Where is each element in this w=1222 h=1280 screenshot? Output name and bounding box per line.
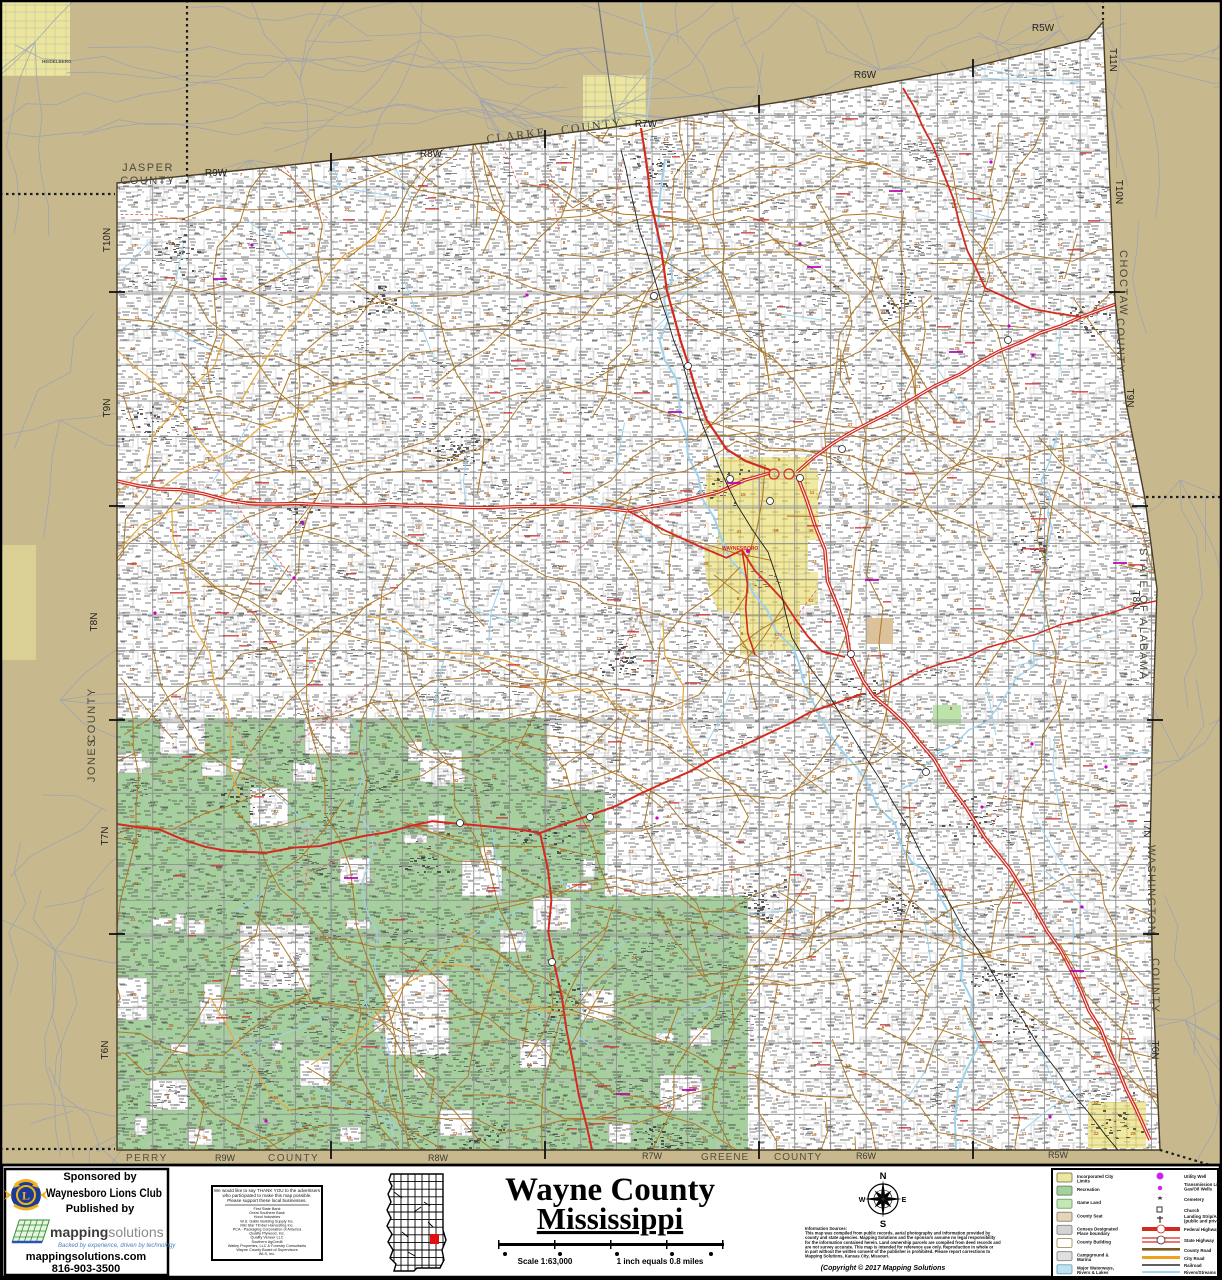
svg-text:4: 4	[955, 809, 958, 814]
svg-text:34: 34	[557, 884, 563, 889]
svg-text:28: 28	[811, 100, 817, 105]
svg-text:31: 31	[489, 563, 495, 568]
svg-text:Federal Highway: Federal Highway	[1184, 1227, 1219, 1232]
svg-text:25: 25	[168, 1023, 174, 1028]
svg-text:10: 10	[347, 811, 353, 816]
svg-text:29: 29	[810, 670, 816, 675]
svg-text:15: 15	[347, 561, 353, 566]
svg-text:L: L	[22, 1189, 30, 1203]
svg-text:9: 9	[991, 919, 994, 924]
svg-text:10: 10	[345, 955, 351, 960]
svg-text:3: 3	[382, 849, 385, 854]
svg-text:33: 33	[310, 243, 316, 248]
svg-text:2: 2	[563, 1132, 566, 1137]
svg-text:25: 25	[771, 1026, 777, 1031]
svg-text:32: 32	[704, 1096, 710, 1101]
svg-text:23: 23	[988, 565, 994, 570]
svg-text:19: 19	[307, 456, 313, 461]
svg-text:33: 33	[736, 776, 742, 781]
svg-text:8: 8	[882, 385, 885, 390]
svg-text:26: 26	[1096, 421, 1102, 426]
svg-text:34: 34	[914, 346, 920, 351]
svg-text:5: 5	[702, 244, 705, 249]
svg-text:10: 10	[414, 562, 420, 567]
svg-text:32: 32	[307, 881, 313, 886]
svg-text:12: 12	[666, 456, 672, 461]
svg-text:29: 29	[204, 1063, 210, 1068]
svg-text:36: 36	[167, 919, 173, 924]
svg-text:32: 32	[239, 1133, 245, 1138]
svg-text:31: 31	[1095, 1064, 1101, 1069]
svg-text:15: 15	[487, 384, 493, 389]
svg-text:2: 2	[669, 563, 672, 568]
svg-text:28: 28	[593, 243, 599, 248]
svg-text:9: 9	[813, 133, 816, 138]
svg-text:32: 32	[453, 778, 459, 783]
svg-text:16: 16	[237, 453, 243, 458]
svg-text:22: 22	[453, 598, 459, 603]
svg-text:29: 29	[309, 492, 315, 497]
svg-text:8: 8	[880, 1060, 883, 1065]
svg-text:36: 36	[882, 170, 888, 175]
svg-text:3: 3	[167, 493, 170, 498]
svg-text:S: S	[880, 1219, 886, 1230]
svg-text:23: 23	[490, 455, 496, 460]
svg-text:11: 11	[950, 101, 955, 106]
svg-text:9: 9	[809, 311, 812, 316]
svg-text:29: 29	[776, 348, 782, 353]
svg-text:19: 19	[1094, 277, 1100, 282]
svg-text:28: 28	[842, 955, 848, 960]
svg-text:9: 9	[523, 778, 526, 783]
svg-text:3: 3	[562, 1097, 565, 1102]
svg-text:T10N: T10N	[1113, 180, 1124, 204]
svg-text:31: 31	[988, 348, 994, 353]
svg-text:20: 20	[1127, 561, 1133, 566]
svg-text:4: 4	[345, 922, 348, 927]
svg-text:21: 21	[170, 277, 176, 282]
svg-text:15: 15	[1128, 846, 1134, 851]
svg-text:17: 17	[632, 314, 638, 319]
svg-text:12: 12	[236, 849, 242, 854]
svg-text:PERRY: PERRY	[126, 1153, 168, 1164]
svg-text:3: 3	[848, 455, 851, 460]
svg-text:T7N: T7N	[1141, 819, 1152, 838]
svg-text:21: 21	[347, 670, 353, 675]
svg-text:COUNTY: COUNTY	[774, 1152, 822, 1163]
svg-text:R7W: R7W	[635, 119, 658, 130]
svg-text:35: 35	[739, 133, 745, 138]
svg-text:7: 7	[1023, 917, 1026, 922]
svg-text:26: 26	[989, 775, 995, 780]
svg-text:T10N: T10N	[102, 228, 113, 252]
svg-text:COUNTY: COUNTY	[1114, 318, 1126, 373]
svg-text:9: 9	[778, 457, 781, 462]
svg-text:36: 36	[776, 919, 782, 924]
svg-text:29: 29	[132, 635, 138, 640]
svg-text:T9N: T9N	[102, 399, 113, 418]
svg-text:19: 19	[843, 208, 849, 213]
svg-text:23: 23	[811, 774, 817, 779]
svg-text:2: 2	[635, 383, 638, 388]
svg-text:16: 16	[597, 738, 603, 743]
svg-text:7: 7	[917, 101, 920, 106]
svg-text:R6W: R6W	[856, 1151, 877, 1161]
svg-text:WAYNESBORO: WAYNESBORO	[722, 546, 758, 552]
svg-text:14: 14	[381, 564, 387, 569]
svg-text:36: 36	[562, 775, 568, 780]
svg-text:2: 2	[701, 672, 704, 677]
svg-text:32: 32	[237, 243, 243, 248]
svg-text:15: 15	[1095, 812, 1101, 817]
svg-text:25: 25	[631, 206, 637, 211]
svg-text:16: 16	[312, 667, 318, 672]
svg-text:15: 15	[240, 422, 246, 427]
svg-text:12: 12	[806, 885, 812, 890]
svg-text:2: 2	[1025, 669, 1028, 674]
svg-text:16: 16	[593, 881, 599, 886]
svg-text:12: 12	[669, 952, 675, 957]
svg-text:14: 14	[594, 814, 600, 819]
svg-text:7: 7	[524, 884, 527, 889]
svg-text:26: 26	[382, 596, 388, 601]
svg-text:26: 26	[381, 742, 387, 747]
svg-text:25: 25	[1022, 315, 1028, 320]
svg-text:27: 27	[1059, 312, 1065, 317]
svg-text:4: 4	[206, 525, 209, 530]
svg-text:9: 9	[421, 384, 424, 389]
svg-text:5: 5	[346, 1061, 349, 1066]
svg-text:29: 29	[167, 1063, 173, 1068]
svg-text:32: 32	[913, 492, 919, 497]
svg-text:19: 19	[663, 705, 669, 710]
svg-text:35: 35	[917, 135, 923, 140]
svg-text:25: 25	[630, 704, 636, 709]
svg-text:10: 10	[273, 277, 279, 282]
svg-text:3: 3	[559, 742, 562, 747]
svg-text:8: 8	[595, 169, 598, 174]
svg-text:5: 5	[952, 884, 955, 889]
svg-text:34: 34	[1057, 1100, 1063, 1105]
svg-text:22: 22	[556, 387, 562, 392]
svg-text:7: 7	[207, 881, 210, 886]
svg-text:22: 22	[1020, 526, 1026, 531]
svg-text:35: 35	[485, 312, 491, 317]
svg-text:31: 31	[736, 173, 742, 178]
svg-text:7: 7	[523, 814, 526, 819]
svg-text:11: 11	[205, 704, 210, 709]
svg-text:7: 7	[382, 526, 385, 531]
svg-text:25: 25	[521, 742, 527, 747]
svg-text:32: 32	[272, 1024, 278, 1029]
svg-text:17: 17	[380, 1135, 386, 1140]
svg-text:32: 32	[739, 705, 745, 710]
svg-text:816-903-3500: 816-903-3500	[52, 1263, 121, 1275]
svg-text:3: 3	[1026, 705, 1029, 710]
svg-text:8: 8	[668, 419, 671, 424]
svg-text:mappingsolutions: mappingsolutions	[50, 1224, 164, 1240]
svg-text:9: 9	[776, 1097, 779, 1102]
svg-text:3: 3	[739, 456, 742, 461]
svg-text:32: 32	[627, 417, 633, 422]
svg-text:25: 25	[240, 706, 246, 711]
svg-text:16: 16	[1128, 526, 1134, 531]
svg-text:19: 19	[596, 203, 602, 208]
svg-text:36: 36	[988, 743, 994, 748]
svg-text:31: 31	[526, 954, 532, 959]
svg-text:T6N: T6N	[100, 1041, 111, 1060]
svg-text:5: 5	[492, 706, 495, 711]
svg-text:20: 20	[273, 952, 279, 957]
svg-text:9: 9	[741, 631, 744, 636]
svg-text:31: 31	[847, 564, 853, 569]
svg-text:12: 12	[952, 774, 958, 779]
svg-text:28: 28	[881, 774, 887, 779]
svg-text:19: 19	[1130, 488, 1136, 493]
svg-text:35: 35	[450, 564, 456, 569]
svg-text:33: 33	[487, 275, 493, 280]
svg-text:15: 15	[379, 919, 385, 924]
svg-text:36: 36	[202, 1135, 208, 1140]
svg-text:E: E	[902, 1197, 907, 1204]
svg-text:3: 3	[381, 348, 384, 353]
svg-text:28: 28	[1093, 1026, 1099, 1031]
svg-text:T9N: T9N	[1124, 389, 1135, 408]
svg-text:25: 25	[985, 133, 991, 138]
svg-text:31: 31	[557, 956, 563, 961]
svg-text:33: 33	[954, 632, 960, 637]
svg-text:22: 22	[449, 885, 455, 890]
svg-text:22: 22	[1096, 881, 1102, 886]
svg-text:20: 20	[240, 1026, 246, 1031]
svg-text:CHOCTAW: CHOCTAW	[1117, 250, 1129, 316]
svg-text:17: 17	[666, 1135, 672, 1140]
svg-text:JASPER: JASPER	[122, 162, 174, 174]
svg-text:16: 16	[346, 1135, 352, 1140]
svg-text:35: 35	[167, 631, 173, 636]
svg-text:5: 5	[383, 275, 386, 280]
svg-text:36: 36	[631, 669, 637, 674]
svg-text:28: 28	[311, 598, 317, 603]
svg-text:28: 28	[132, 845, 138, 850]
svg-text:23: 23	[347, 881, 353, 886]
svg-text:5: 5	[740, 1136, 743, 1141]
svg-text:20: 20	[952, 312, 958, 317]
svg-text:32: 32	[271, 775, 277, 780]
svg-text:8: 8	[167, 1095, 170, 1100]
svg-text:5: 5	[311, 916, 314, 921]
svg-text:22: 22	[989, 277, 995, 282]
svg-text:3: 3	[417, 1132, 420, 1137]
svg-text:19: 19	[449, 845, 455, 850]
svg-text:22: 22	[916, 597, 922, 602]
svg-text:29: 29	[914, 206, 920, 211]
svg-text:29: 29	[310, 636, 316, 641]
svg-text:R9W: R9W	[205, 168, 228, 179]
svg-text:36: 36	[378, 809, 384, 814]
svg-text:19: 19	[773, 528, 779, 533]
svg-text:34: 34	[489, 1062, 495, 1067]
svg-text:28: 28	[485, 493, 491, 498]
svg-text:19: 19	[273, 1095, 279, 1100]
svg-text:JONES: JONES	[86, 738, 98, 782]
svg-text:mappingsolutions.com: mappingsolutions.com	[26, 1251, 147, 1263]
svg-text:5: 5	[562, 813, 565, 818]
svg-text:33: 33	[380, 1029, 386, 1034]
svg-text:29: 29	[917, 636, 923, 641]
svg-text:14: 14	[985, 204, 991, 209]
svg-text:3: 3	[883, 560, 886, 565]
svg-text:7: 7	[528, 635, 531, 640]
svg-text:11: 11	[774, 135, 779, 140]
svg-text:5: 5	[884, 921, 887, 926]
svg-text:Place boundary: Place boundary	[1077, 1231, 1110, 1236]
svg-text:WLS, Inc.: WLS, Inc.	[259, 1252, 275, 1256]
svg-text:11: 11	[1095, 173, 1100, 178]
svg-text:33: 33	[485, 423, 491, 428]
svg-text:22: 22	[700, 203, 706, 208]
svg-text:31: 31	[561, 167, 567, 172]
svg-text:33: 33	[881, 101, 887, 106]
svg-text:16: 16	[771, 170, 777, 175]
svg-text:29: 29	[738, 954, 744, 959]
svg-text:35: 35	[164, 417, 170, 422]
svg-text:23: 23	[561, 990, 567, 995]
svg-text:25: 25	[167, 779, 173, 784]
svg-text:36: 36	[951, 1099, 957, 1104]
svg-text:25: 25	[1095, 204, 1101, 209]
svg-text:11: 11	[241, 742, 246, 747]
svg-text:19: 19	[1092, 102, 1098, 107]
svg-text:20: 20	[556, 350, 562, 355]
svg-text:29: 29	[596, 957, 602, 962]
svg-text:15: 15	[809, 738, 815, 743]
svg-text:35: 35	[417, 274, 423, 279]
svg-text:21: 21	[1058, 275, 1064, 280]
svg-text:10: 10	[415, 525, 421, 530]
svg-text:4: 4	[883, 526, 886, 531]
svg-text:8: 8	[950, 706, 953, 711]
svg-text:32: 32	[916, 315, 922, 320]
svg-text:26: 26	[984, 669, 990, 674]
svg-text:34: 34	[346, 488, 352, 493]
svg-text:19: 19	[877, 989, 883, 994]
svg-text:35: 35	[595, 849, 601, 854]
svg-text:35: 35	[633, 529, 639, 534]
svg-text:9: 9	[773, 777, 776, 782]
svg-text:2: 2	[706, 310, 709, 315]
svg-text:10: 10	[272, 991, 278, 996]
svg-text:26: 26	[272, 672, 278, 677]
svg-text:8: 8	[705, 952, 708, 957]
svg-text:County Building: County Building	[1077, 1240, 1111, 1245]
svg-text:26: 26	[737, 1062, 743, 1067]
svg-text:7: 7	[240, 172, 243, 177]
svg-text:2: 2	[168, 458, 171, 463]
svg-text:4: 4	[419, 882, 422, 887]
svg-text:7: 7	[562, 457, 565, 462]
svg-text:34: 34	[1056, 918, 1062, 923]
svg-text:33: 33	[240, 313, 246, 318]
svg-text:26: 26	[205, 742, 211, 747]
svg-text:5: 5	[951, 671, 954, 676]
svg-text:11: 11	[705, 596, 710, 601]
svg-text:19: 19	[487, 530, 493, 535]
svg-text:16: 16	[1096, 494, 1102, 499]
svg-text:34: 34	[917, 886, 923, 891]
svg-text:33: 33	[739, 668, 745, 673]
svg-text:7: 7	[172, 742, 175, 747]
svg-text:22: 22	[452, 1131, 458, 1136]
svg-text:2: 2	[952, 457, 955, 462]
svg-text:16: 16	[703, 455, 709, 460]
svg-text:21: 21	[130, 917, 136, 922]
svg-text:28: 28	[419, 634, 425, 639]
svg-text:Recreation: Recreation	[1077, 1187, 1100, 1192]
svg-text:16: 16	[238, 991, 244, 996]
svg-text:22: 22	[950, 1135, 956, 1140]
svg-text:16: 16	[667, 383, 673, 388]
svg-text:19: 19	[1058, 493, 1064, 498]
svg-text:20: 20	[205, 351, 211, 356]
svg-text:20: 20	[879, 205, 885, 210]
svg-text:2: 2	[705, 992, 708, 997]
svg-text:31: 31	[736, 529, 742, 534]
svg-text:17: 17	[1096, 63, 1102, 68]
svg-text:20: 20	[274, 631, 280, 636]
svg-text:27: 27	[951, 919, 957, 924]
svg-text:36: 36	[346, 1099, 352, 1104]
svg-text:19: 19	[593, 526, 599, 531]
svg-text:27: 27	[485, 350, 491, 355]
svg-text:3: 3	[455, 993, 458, 998]
svg-text:33: 33	[953, 598, 959, 603]
svg-text:35: 35	[950, 243, 956, 248]
svg-text:17: 17	[200, 560, 206, 565]
svg-text:11: 11	[201, 276, 206, 281]
svg-text:12: 12	[490, 207, 496, 212]
svg-text:11: 11	[702, 1025, 707, 1030]
svg-text:9: 9	[847, 846, 850, 851]
svg-text:12: 12	[560, 631, 566, 636]
svg-text:32: 32	[918, 529, 924, 534]
svg-text:5: 5	[274, 240, 277, 245]
svg-text:21: 21	[559, 595, 565, 600]
svg-text:19: 19	[348, 777, 354, 782]
svg-text:14: 14	[343, 1024, 349, 1029]
svg-text:8: 8	[309, 203, 312, 208]
svg-text:26: 26	[453, 457, 459, 462]
svg-text:7: 7	[203, 848, 206, 853]
svg-text:20: 20	[415, 419, 421, 424]
svg-text:15: 15	[774, 240, 780, 245]
svg-text:10: 10	[705, 885, 711, 890]
svg-text:17: 17	[169, 989, 175, 994]
svg-text:34: 34	[417, 850, 423, 855]
svg-text:21: 21	[272, 488, 278, 493]
svg-text:25: 25	[240, 493, 246, 498]
svg-text:T7N: T7N	[100, 827, 111, 846]
svg-text:16: 16	[557, 418, 563, 423]
svg-text:35: 35	[1023, 132, 1029, 137]
svg-text:COUNTY: COUNTY	[86, 687, 98, 742]
svg-text:19: 19	[1025, 456, 1031, 461]
svg-text:17: 17	[131, 243, 137, 248]
svg-text:2: 2	[954, 133, 957, 138]
svg-text:34: 34	[701, 1135, 707, 1140]
svg-text:19: 19	[130, 346, 136, 351]
svg-text:2: 2	[777, 274, 780, 279]
